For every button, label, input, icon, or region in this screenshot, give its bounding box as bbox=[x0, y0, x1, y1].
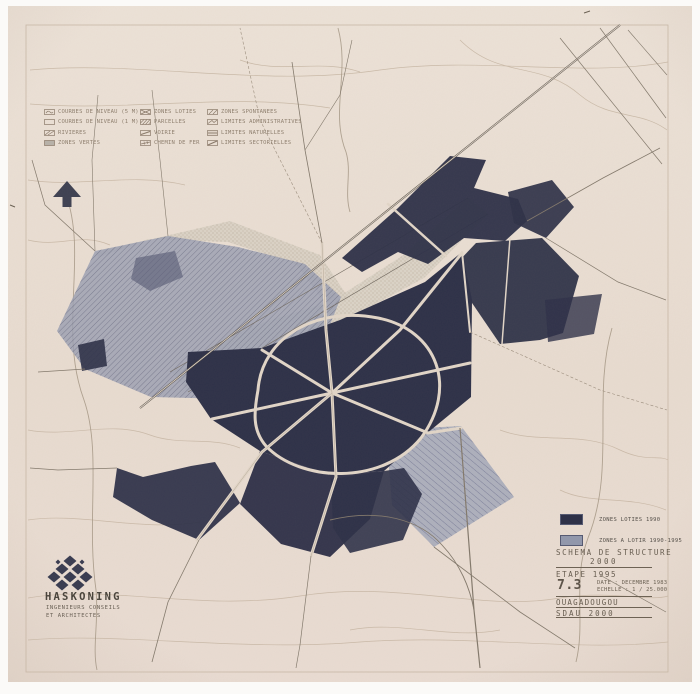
legend-item-label: COURBES DE NIVEAU (5 M) bbox=[58, 109, 139, 115]
legend-item-label: VOIRIE bbox=[154, 130, 175, 136]
legend-item: ZONES SPONTANEES bbox=[207, 108, 277, 115]
map-canvas bbox=[0, 0, 700, 694]
legend-item-label: ZONES A LOTIR 1990-1995 bbox=[599, 538, 682, 544]
date-label: DATE : DECEMBRE 1983 bbox=[597, 580, 667, 586]
legend-item-label: LIMITES NATURELLES bbox=[221, 130, 284, 136]
firm-subtitle: INGENIEURS CONSEILS bbox=[46, 605, 120, 611]
map-title-year: 2000 bbox=[556, 557, 652, 566]
swatch-contour-5m-icon bbox=[44, 109, 55, 115]
rule bbox=[556, 596, 652, 597]
legend-item-label: ZONES VERTES bbox=[58, 140, 100, 146]
scale-label: ECHELLE : 1 / 25.000 bbox=[597, 587, 667, 593]
rule bbox=[556, 567, 652, 568]
zones-a-lotir-swatch bbox=[560, 535, 583, 546]
sheet-number: 7.3 bbox=[557, 578, 582, 593]
swatch-limites-administratives-icon bbox=[207, 119, 218, 125]
firm-subtitle: ET ARCHITECTES bbox=[46, 613, 101, 619]
swatch-contour-1m-icon bbox=[44, 119, 55, 125]
rule bbox=[556, 617, 652, 618]
legend-item: LIMITES NATURELLES bbox=[207, 129, 284, 136]
legend-item-label: LIMITES ADMINISTRATIVES bbox=[221, 119, 302, 125]
map-title: SCHEMA DE STRUCTURE bbox=[556, 548, 672, 557]
firm-name: HASKONING bbox=[45, 591, 122, 603]
legend-item: CHEMIN DE FER bbox=[140, 140, 200, 147]
legend-item: LIMITES ADMINISTRATIVES bbox=[207, 119, 302, 126]
swatch-zones-loties-icon bbox=[140, 109, 151, 115]
legend-item-label: PARCELLES bbox=[154, 119, 186, 125]
legend-item: ZONES LOTIES bbox=[140, 108, 196, 115]
legend-item-label: CHEMIN DE FER bbox=[154, 140, 200, 146]
swatch-voirie-icon bbox=[140, 130, 151, 136]
legend-item-label: ZONES LOTIES 1990 bbox=[599, 517, 660, 523]
legend-item: LIMITES SECTORIELLES bbox=[207, 140, 291, 147]
swatch-chemin-de-fer-icon bbox=[140, 140, 151, 146]
legend-item: PARCELLES bbox=[140, 119, 186, 126]
legend-item: COURBES DE NIVEAU (5 M) bbox=[44, 108, 139, 115]
legend-item-label: LIMITES SECTORIELLES bbox=[221, 140, 291, 146]
legend-item: ZONES LOTIES 1990 bbox=[560, 514, 660, 525]
legend-item: COURBES DE NIVEAU (1 M) bbox=[44, 119, 139, 126]
legend-item: RIVIERES bbox=[44, 129, 86, 136]
swatch-zones-spontanees-icon bbox=[207, 109, 218, 115]
city-name: OUAGADOUGOU bbox=[556, 598, 619, 607]
legend-item: VOIRIE bbox=[140, 129, 175, 136]
swatch-parcelles-icon bbox=[140, 119, 151, 125]
legend-item-label: ZONES LOTIES bbox=[154, 109, 196, 115]
swatch-limites-sectorielles-icon bbox=[207, 140, 218, 146]
swatch-limites-naturelles-icon bbox=[207, 130, 218, 136]
legend-item-label: COURBES DE NIVEAU (1 M) bbox=[58, 119, 139, 125]
zones-loties-swatch bbox=[560, 514, 583, 525]
legend-item: ZONES A LOTIR 1990-1995 bbox=[560, 535, 682, 546]
rule bbox=[556, 607, 652, 608]
legend-item-label: ZONES SPONTANEES bbox=[221, 109, 277, 115]
legend-item-label: RIVIERES bbox=[58, 130, 86, 136]
scanned-map-page: COURBES DE NIVEAU (5 M) COURBES DE NIVEA… bbox=[0, 0, 700, 694]
legend-item: ZONES VERTES bbox=[44, 140, 100, 147]
swatch-zones-vertes-icon bbox=[44, 140, 55, 146]
swatch-rivieres-icon bbox=[44, 130, 55, 136]
